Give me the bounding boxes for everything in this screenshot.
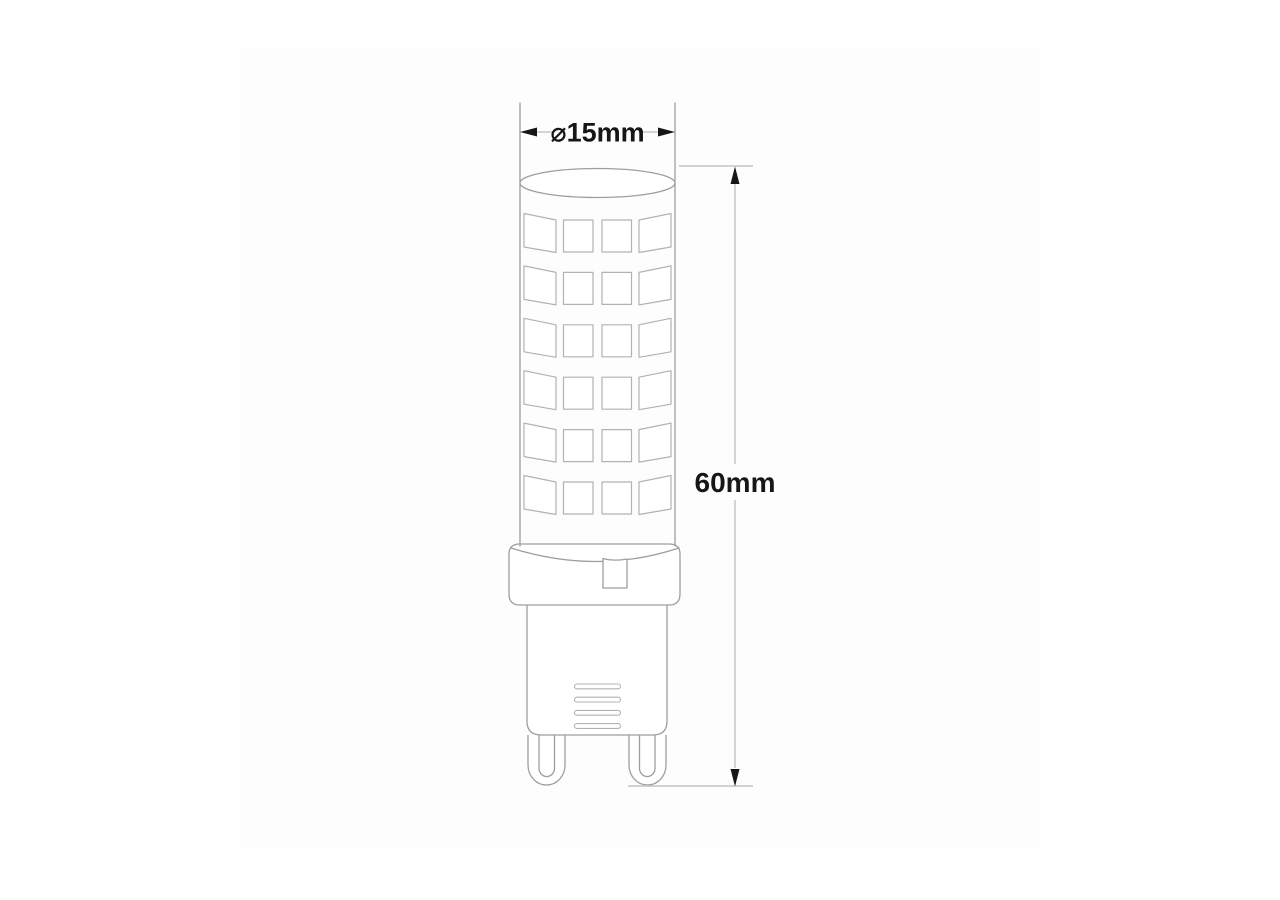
led-tile bbox=[602, 377, 632, 409]
collar bbox=[509, 544, 680, 605]
led-tile bbox=[524, 423, 556, 462]
led-tile bbox=[564, 220, 594, 252]
led-tile bbox=[602, 220, 632, 252]
led-tile bbox=[639, 423, 671, 462]
led-tile bbox=[639, 371, 671, 410]
led-tile bbox=[639, 476, 671, 515]
vent-slot bbox=[575, 684, 621, 689]
led-tile bbox=[524, 476, 556, 515]
led-tile bbox=[602, 430, 632, 462]
diameter-label: ⌀15mm bbox=[550, 118, 644, 148]
vent-slot bbox=[575, 710, 621, 715]
led-tile bbox=[564, 272, 594, 304]
mold-tab bbox=[603, 559, 627, 589]
vent-slot bbox=[575, 724, 621, 729]
led-tile bbox=[524, 371, 556, 410]
led-tile bbox=[564, 377, 594, 409]
pin-left-outer bbox=[528, 735, 565, 785]
led-tile bbox=[602, 272, 632, 304]
dimension-diagram-svg: ⌀15mm 60mm bbox=[0, 0, 1280, 900]
led-tile bbox=[564, 482, 594, 514]
led-tile bbox=[639, 318, 671, 357]
led-tile bbox=[524, 266, 556, 305]
height-label: 60mm bbox=[695, 467, 776, 498]
led-tile bbox=[639, 266, 671, 305]
led-tile bbox=[602, 482, 632, 514]
led-tile bbox=[564, 430, 594, 462]
led-tile bbox=[524, 318, 556, 357]
vent-slot bbox=[575, 697, 621, 702]
page: ⌀15mm 60mm bbox=[0, 0, 1280, 900]
led-tile bbox=[639, 214, 671, 253]
led-tile bbox=[602, 325, 632, 357]
led-tile bbox=[524, 214, 556, 253]
bulb-top-ellipse bbox=[520, 169, 675, 198]
pin-right-outer bbox=[629, 735, 666, 785]
led-tile bbox=[564, 325, 594, 357]
